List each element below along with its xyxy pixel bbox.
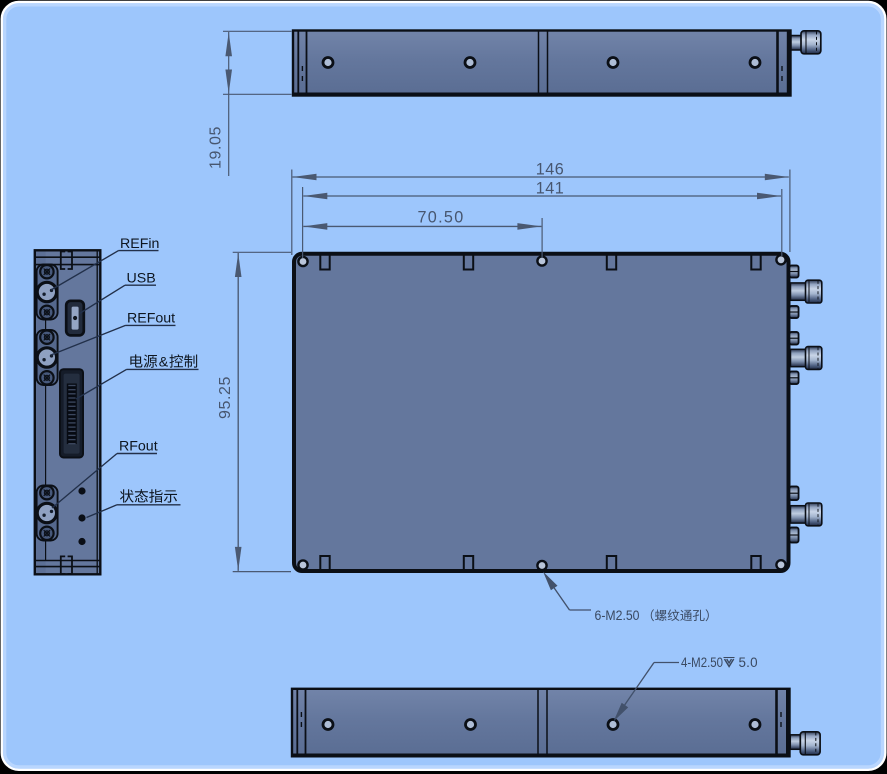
svg-text:5.0: 5.0 [739, 655, 758, 670]
svg-text:REFout: REFout [127, 311, 175, 327]
svg-text:REFin: REFin [120, 236, 159, 252]
svg-text:4-M2.50: 4-M2.50 [681, 655, 723, 670]
svg-text:19.05: 19.05 [208, 126, 225, 169]
svg-text:USB: USB [127, 270, 156, 286]
svg-text:RFout: RFout [119, 439, 158, 455]
svg-text:6-M2.50: 6-M2.50 [595, 608, 640, 623]
svg-text:95.25: 95.25 [217, 376, 234, 419]
svg-text:&: & [159, 355, 169, 371]
svg-text:146: 146 [536, 161, 565, 179]
svg-text:70.50: 70.50 [417, 209, 464, 227]
svg-text:141: 141 [536, 180, 565, 198]
